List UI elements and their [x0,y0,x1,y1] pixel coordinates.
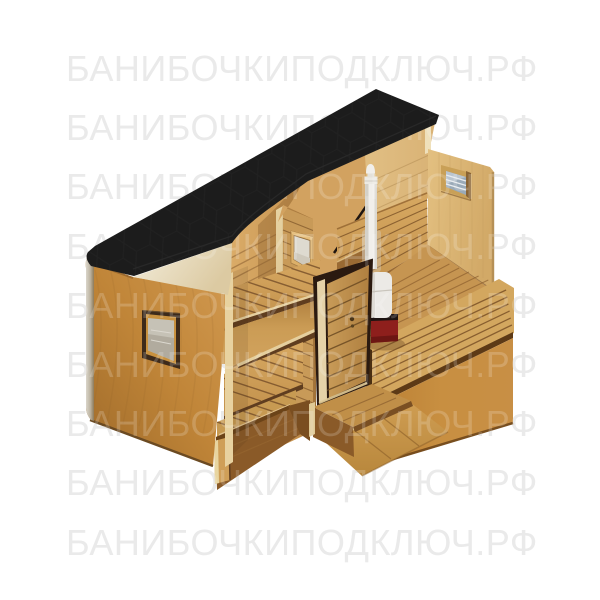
svg-text:БАНИБОЧКИПОДКЛЮЧ.РФ: БАНИБОЧКИПОДКЛЮЧ.РФ [66,522,538,563]
svg-text:БАНИБОЧКИПОДКЛЮЧ.РФ: БАНИБОЧКИПОДКЛЮЧ.РФ [66,48,538,89]
svg-text:БАНИБОЧКИПОДКЛЮЧ.РФ: БАНИБОЧКИПОДКЛЮЧ.РФ [66,344,538,385]
svg-text:БАНИБОЧКИПОДКЛЮЧ.РФ: БАНИБОЧКИПОДКЛЮЧ.РФ [66,403,538,444]
svg-text:БАНИБОЧКИПОДКЛЮЧ.РФ: БАНИБОЧКИПОДКЛЮЧ.РФ [66,462,538,503]
svg-text:БАНИБОЧКИПОДКЛЮЧ.РФ: БАНИБОЧКИПОДКЛЮЧ.РФ [66,285,538,326]
